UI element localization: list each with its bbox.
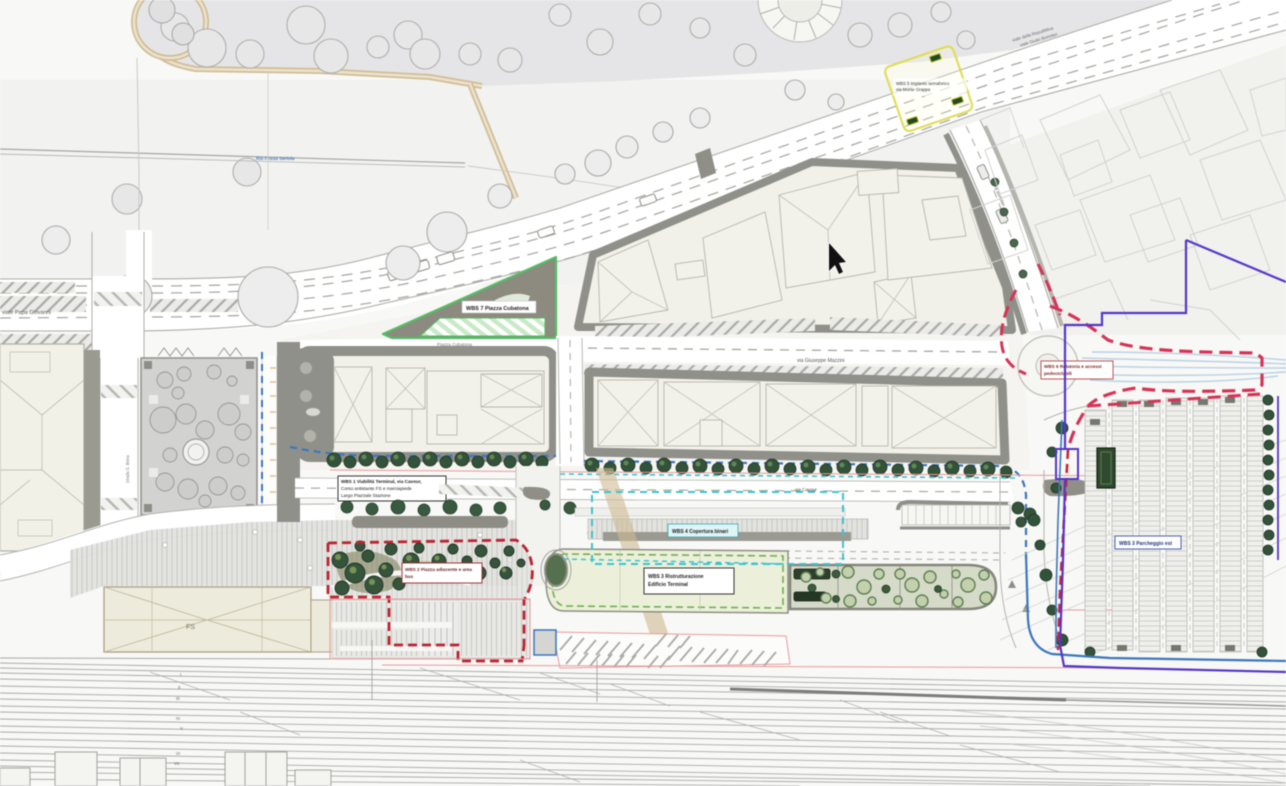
svg-text:WBS 2 Piazza adiacente e area: WBS 2 Piazza adiacente e area — [405, 567, 472, 572]
svg-text:II: II — [178, 685, 180, 690]
svg-text:III: III — [176, 696, 180, 701]
svg-text:V: V — [180, 726, 183, 731]
svg-text:WBS 4 Copertura binari: WBS 4 Copertura binari — [672, 529, 729, 535]
svg-text:VI: VI — [176, 751, 180, 756]
svg-text:bus: bus — [405, 574, 414, 579]
svg-text:strada S. Bona: strada S. Bona — [125, 455, 130, 483]
svg-text:WBS 3 Parcheggio est: WBS 3 Parcheggio est — [1119, 541, 1172, 547]
svg-text:via Monte Grappa: via Monte Grappa — [896, 87, 931, 92]
svg-text:Rio Fossa Seriola: Rio Fossa Seriola — [256, 156, 295, 161]
svg-text:viale Papa Giovanni: viale Papa Giovanni — [2, 310, 51, 316]
svg-text:WBS 6 Rotatoria e accessi: WBS 6 Rotatoria e accessi — [1044, 364, 1102, 369]
svg-text:Corso antistante FS e marciapi: Corso antistante FS e marciapiede — [341, 486, 412, 491]
svg-text:VII: VII — [174, 761, 179, 766]
svg-text:I: I — [180, 672, 181, 677]
svg-text:IV: IV — [176, 716, 180, 721]
svg-text:WBS 5 Impianto semaforico: WBS 5 Impianto semaforico — [896, 81, 950, 86]
svg-text:pedociclabili: pedociclabili — [1044, 371, 1072, 376]
svg-text:via Giuseppe Mazzini: via Giuseppe Mazzini — [797, 358, 845, 364]
svg-text:WBS 7 Piazza Cubatona: WBS 7 Piazza Cubatona — [466, 306, 530, 312]
svg-text:Largo Piazzale Stazione: Largo Piazzale Stazione — [341, 493, 391, 498]
svg-text:Edificio Terminal: Edificio Terminal — [648, 582, 689, 588]
svg-text:WBS 3 Ristrutturazione: WBS 3 Ristrutturazione — [648, 574, 704, 580]
svg-text:FS: FS — [186, 624, 195, 631]
svg-text:WBS 1 Viabilità Terminal, via: WBS 1 Viabilità Terminal, via Cavour, — [341, 479, 422, 484]
